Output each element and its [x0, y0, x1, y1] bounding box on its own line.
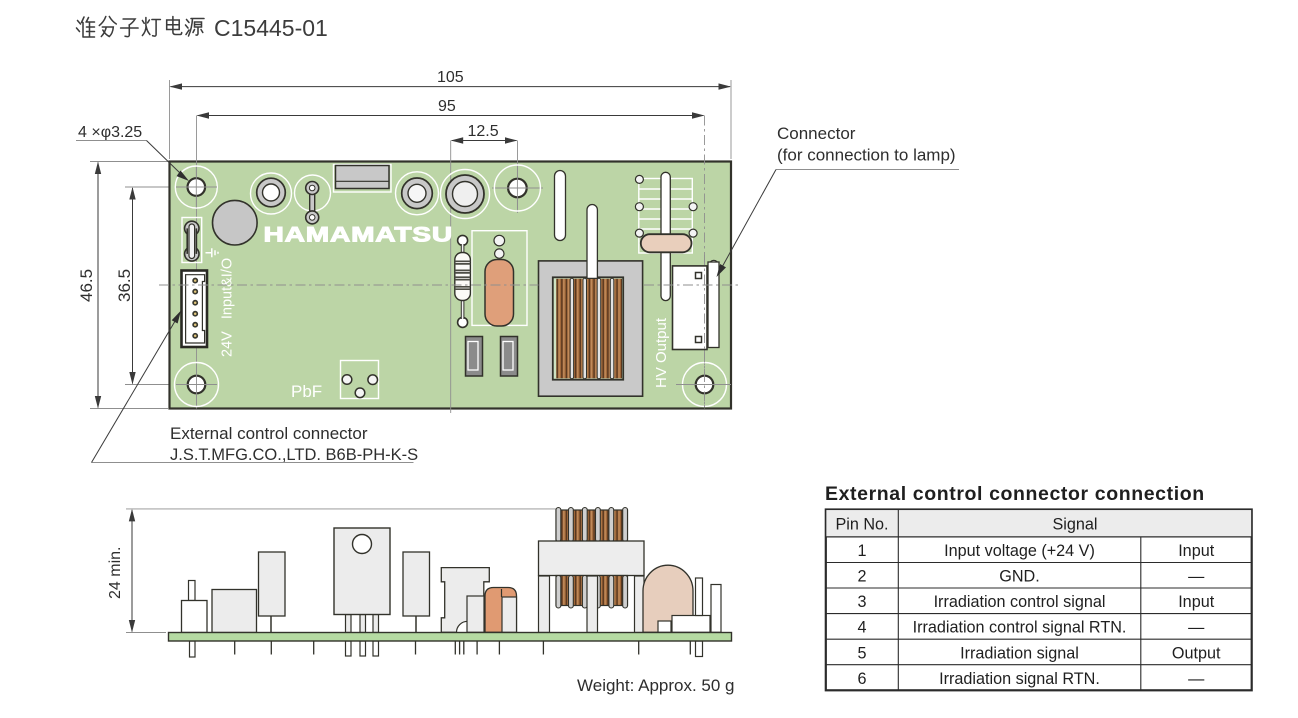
svg-text:Irradiation control signal RTN: Irradiation control signal RTN.	[913, 619, 1127, 637]
svg-text:Input: Input	[1178, 593, 1215, 611]
svg-text:External control connector con: External control connector connection	[825, 483, 1205, 505]
svg-text:Pin No.: Pin No.	[835, 516, 888, 534]
svg-text:—: —	[1188, 670, 1205, 688]
svg-text:HAMAMATSU: HAMAMATSU	[264, 224, 453, 247]
svg-text:2: 2	[857, 568, 866, 586]
svg-text:Irradiation signal RTN.: Irradiation signal RTN.	[939, 670, 1100, 688]
svg-text:External control connector: External control connector	[170, 424, 368, 443]
svg-text:—: —	[1188, 619, 1205, 637]
svg-text:4 ×φ3.25: 4 ×φ3.25	[78, 124, 142, 141]
svg-text:—: —	[1188, 568, 1205, 586]
svg-text:GND.: GND.	[999, 568, 1039, 586]
svg-text:3: 3	[857, 593, 866, 611]
svg-text:Signal: Signal	[1053, 516, 1098, 534]
svg-text:Connector: Connector	[777, 124, 856, 143]
svg-text:5: 5	[857, 644, 866, 662]
svg-text:Irradiation signal: Irradiation signal	[960, 644, 1079, 662]
svg-text:PbF: PbF	[291, 382, 322, 401]
svg-text:24 min.: 24 min.	[107, 547, 124, 599]
svg-text:Input voltage (+24 V): Input voltage (+24 V)	[944, 542, 1095, 560]
svg-text:24V Input&I/O: 24V Input&I/O	[220, 258, 236, 357]
svg-text:Output: Output	[1172, 644, 1221, 662]
svg-text:95: 95	[438, 98, 456, 115]
svg-text:4: 4	[857, 619, 866, 637]
svg-text:Weight: Approx. 50 g: Weight: Approx. 50 g	[577, 676, 735, 695]
svg-text:Irradiation control signal: Irradiation control signal	[934, 593, 1106, 611]
svg-text:J.S.T.MFG.CO.,LTD. B6B-PH-K-S: J.S.T.MFG.CO.,LTD. B6B-PH-K-S	[170, 446, 418, 464]
svg-text:105: 105	[437, 69, 464, 86]
svg-text:36.5: 36.5	[115, 269, 134, 302]
svg-text:6: 6	[857, 670, 866, 688]
svg-text:HV Output: HV Output	[653, 317, 670, 388]
svg-text:46.5: 46.5	[77, 269, 96, 302]
svg-text:12.5: 12.5	[468, 123, 499, 140]
svg-text:1: 1	[857, 542, 866, 560]
svg-text:(for connection to lamp): (for connection to lamp)	[777, 146, 956, 165]
svg-text:Input: Input	[1178, 542, 1215, 560]
svg-text:C15445-01: C15445-01	[214, 15, 328, 41]
